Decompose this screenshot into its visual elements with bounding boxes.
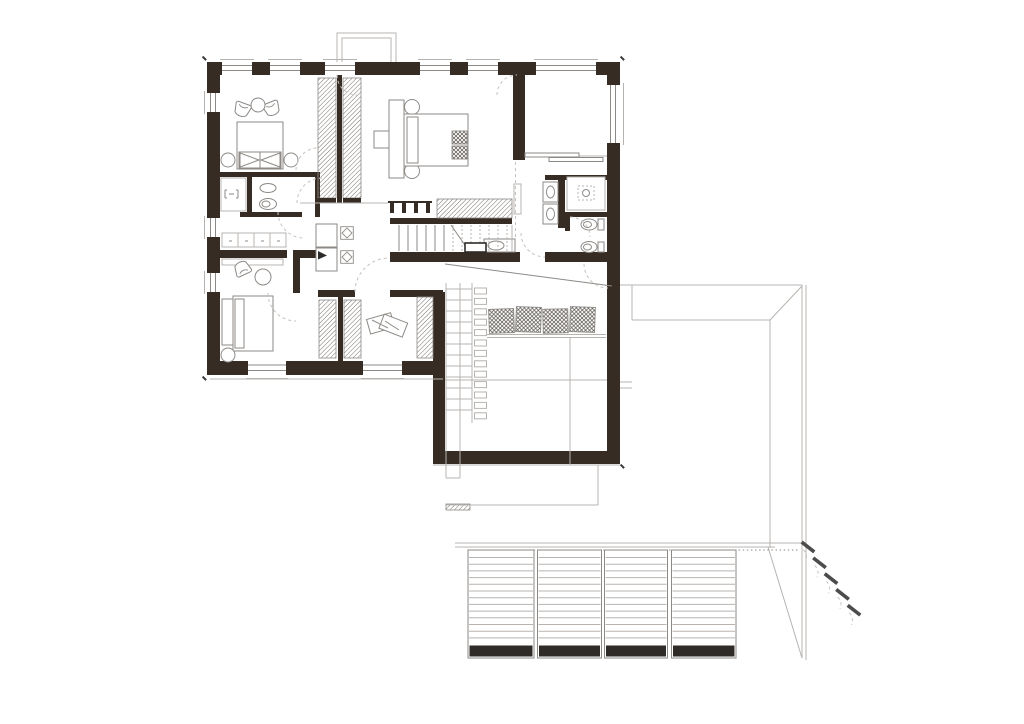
bench <box>407 117 418 163</box>
sofa-back <box>222 299 233 345</box>
cushion <box>570 307 596 333</box>
ramp-line <box>445 264 612 286</box>
desk <box>316 248 337 271</box>
desk-chair <box>341 251 354 264</box>
handrail-end <box>465 243 486 252</box>
floor-plan-sheet <box>0 0 1024 724</box>
sliding-door-panel <box>549 158 603 162</box>
hall-cabinets <box>222 233 286 265</box>
washbasin-icon <box>260 184 276 193</box>
pillow <box>452 131 467 144</box>
window <box>361 361 404 379</box>
toilet-icon <box>581 219 604 230</box>
bedroom-2-master <box>374 100 468 179</box>
window <box>268 60 302 76</box>
window <box>246 361 288 379</box>
washbasin-cabinet <box>543 204 558 224</box>
walk-in-closet-1 <box>318 75 361 203</box>
shelf <box>222 259 283 265</box>
wall-ladder <box>446 283 487 510</box>
garden-steps <box>794 541 862 626</box>
clothes-pile-icon <box>367 313 408 337</box>
armchair <box>232 101 252 119</box>
window <box>534 60 598 76</box>
window <box>220 60 254 76</box>
window <box>205 91 221 114</box>
window <box>466 60 500 76</box>
window <box>418 60 452 76</box>
side-table <box>284 153 298 167</box>
side-table <box>221 153 235 167</box>
toilet-icon <box>260 199 277 210</box>
desk-chair <box>341 227 354 240</box>
window <box>205 216 221 239</box>
pillow <box>452 146 467 159</box>
bench-with-cushions <box>487 307 606 338</box>
side-table <box>405 100 420 115</box>
closet-above-stairs <box>437 199 512 218</box>
round-table <box>221 348 235 362</box>
round-table <box>255 269 271 285</box>
cushion <box>543 309 569 334</box>
desk <box>316 224 337 247</box>
shower-tray <box>567 177 605 210</box>
window <box>607 83 624 145</box>
bedroom-1 <box>221 98 298 169</box>
bedroom-3 <box>221 259 273 362</box>
bidet-icon <box>581 242 604 253</box>
window <box>205 271 221 294</box>
desk <box>374 131 389 148</box>
sliding-door-panel <box>525 153 579 157</box>
walk-in-closet-2 <box>319 297 361 361</box>
terrace <box>433 285 861 660</box>
cushion <box>489 309 515 334</box>
floor-plan-drawing <box>0 0 1024 724</box>
washbasin-cabinet <box>543 182 558 202</box>
stair-railing <box>388 201 432 213</box>
bed-pillows <box>239 152 281 168</box>
round-table <box>251 98 265 112</box>
louvered-panels <box>468 550 736 658</box>
cushion <box>516 307 542 333</box>
window <box>323 60 357 76</box>
dressing-room <box>367 297 433 358</box>
loggia <box>525 153 607 162</box>
headboard-board <box>389 100 404 178</box>
